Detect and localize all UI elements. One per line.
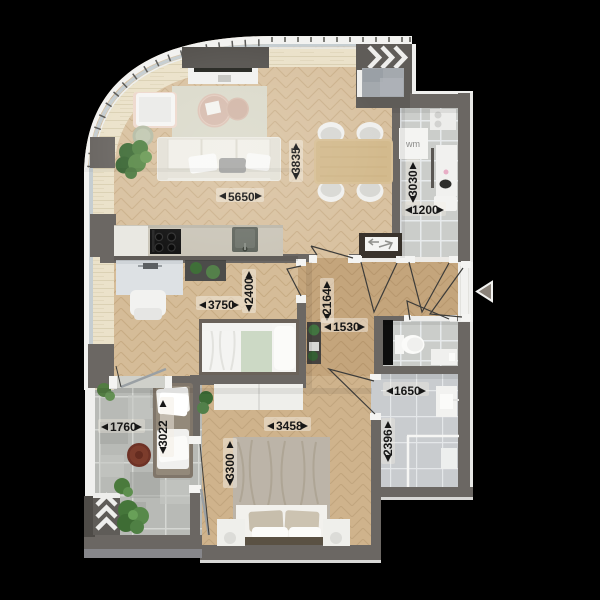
- svg-text:1760: 1760: [110, 420, 137, 434]
- svg-text:3022: 3022: [156, 420, 170, 447]
- svg-text:3030: 3030: [406, 170, 420, 197]
- svg-text:1650: 1650: [394, 384, 421, 398]
- svg-text:3750: 3750: [208, 298, 235, 312]
- svg-text:2396: 2396: [381, 429, 395, 456]
- svg-text:2400: 2400: [242, 277, 256, 304]
- svg-text:1200: 1200: [412, 203, 439, 217]
- svg-text:3458: 3458: [276, 419, 303, 433]
- svg-text:wm: wm: [405, 139, 420, 149]
- svg-text:3300: 3300: [223, 453, 237, 480]
- svg-text:1530: 1530: [333, 320, 360, 334]
- svg-text:2164: 2164: [320, 288, 334, 315]
